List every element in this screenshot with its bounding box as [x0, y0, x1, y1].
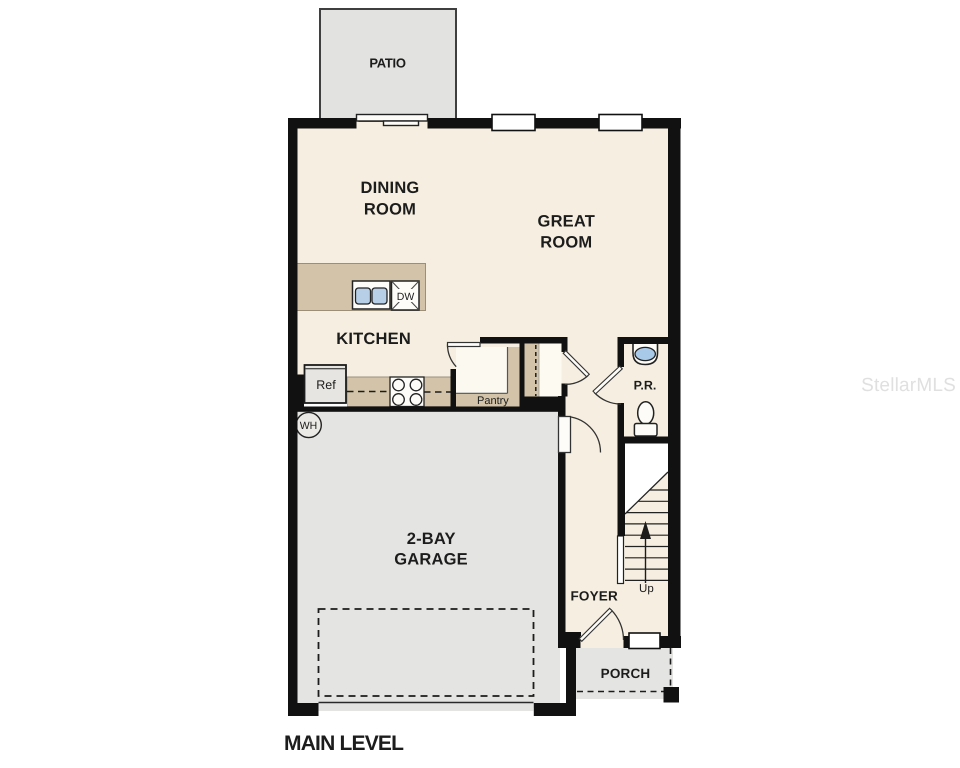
svg-text:ROOM: ROOM [540, 234, 592, 252]
svg-text:2-BAY: 2-BAY [407, 530, 456, 548]
svg-text:PORCH: PORCH [601, 666, 651, 681]
svg-text:FOYER: FOYER [570, 589, 618, 604]
svg-text:P.R.: P.R. [634, 379, 657, 393]
svg-text:GREAT: GREAT [538, 213, 596, 231]
svg-text:DINING: DINING [361, 179, 420, 197]
svg-text:MAIN LEVEL: MAIN LEVEL [284, 732, 404, 755]
svg-text:Up: Up [639, 583, 654, 595]
svg-text:Pantry: Pantry [477, 395, 509, 407]
svg-text:Ref: Ref [316, 378, 336, 392]
svg-text:KITCHEN: KITCHEN [336, 330, 411, 348]
svg-text:GARAGE: GARAGE [394, 551, 468, 569]
svg-text:StellarMLS: StellarMLS [861, 375, 956, 396]
svg-text:PATIO: PATIO [369, 56, 405, 71]
svg-text:ROOM: ROOM [364, 201, 416, 219]
svg-text:DW: DW [397, 291, 415, 303]
svg-text:WH: WH [300, 420, 318, 432]
